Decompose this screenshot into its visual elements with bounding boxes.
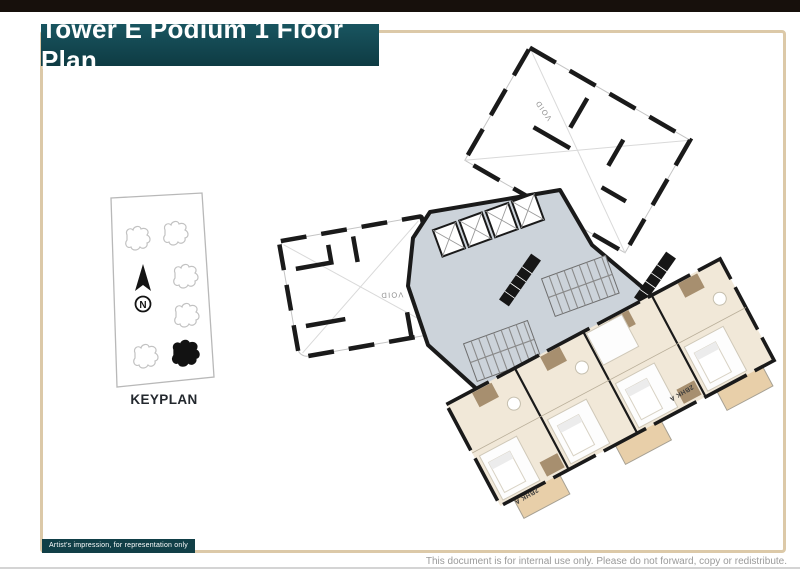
floor-plan-drawing: VOID VOID: [270, 40, 785, 545]
footer-note: This document is for internal use only. …: [426, 556, 787, 567]
keyplan-highlighted-tower: [173, 340, 200, 366]
disclaimer-badge: Artist's impression, for representation …: [42, 539, 195, 553]
top-bar: [0, 0, 800, 12]
keyplan-building-5: [134, 344, 158, 368]
page-title-banner: Tower E Podium 1 Floor Plan: [41, 24, 379, 66]
keyplan-drawing: N: [85, 185, 240, 395]
keyplan-building-2: [164, 221, 188, 245]
keyplan-building-3: [174, 264, 198, 288]
page-title: Tower E Podium 1 Floor Plan: [41, 14, 379, 76]
keyplan-building-1: [126, 226, 150, 250]
keyplan-site-boundary: [111, 193, 214, 387]
void-label-left: VOID: [380, 290, 403, 300]
keyplan-building-4: [175, 303, 199, 327]
north-letter: N: [139, 300, 146, 311]
disclaimer-text: Artist's impression, for representation …: [49, 542, 188, 549]
keyplan-label: KEYPLAN: [105, 392, 223, 407]
bottom-divider: [0, 567, 800, 569]
